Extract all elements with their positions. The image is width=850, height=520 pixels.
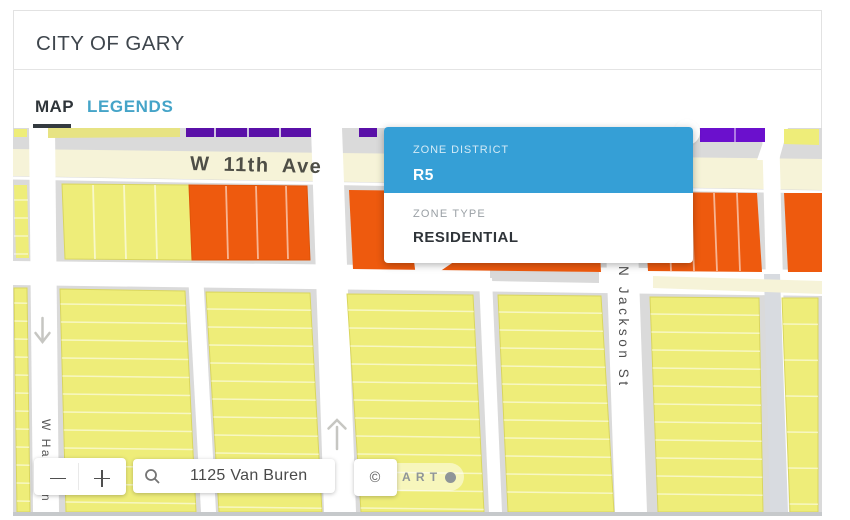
svg-text:n: n: [39, 494, 53, 501]
svg-text:N Jackson St: N Jackson St: [616, 266, 631, 389]
svg-text:W Ha: W Ha: [39, 419, 53, 459]
svg-text:W 11th Ave: W 11th Ave: [190, 153, 323, 178]
